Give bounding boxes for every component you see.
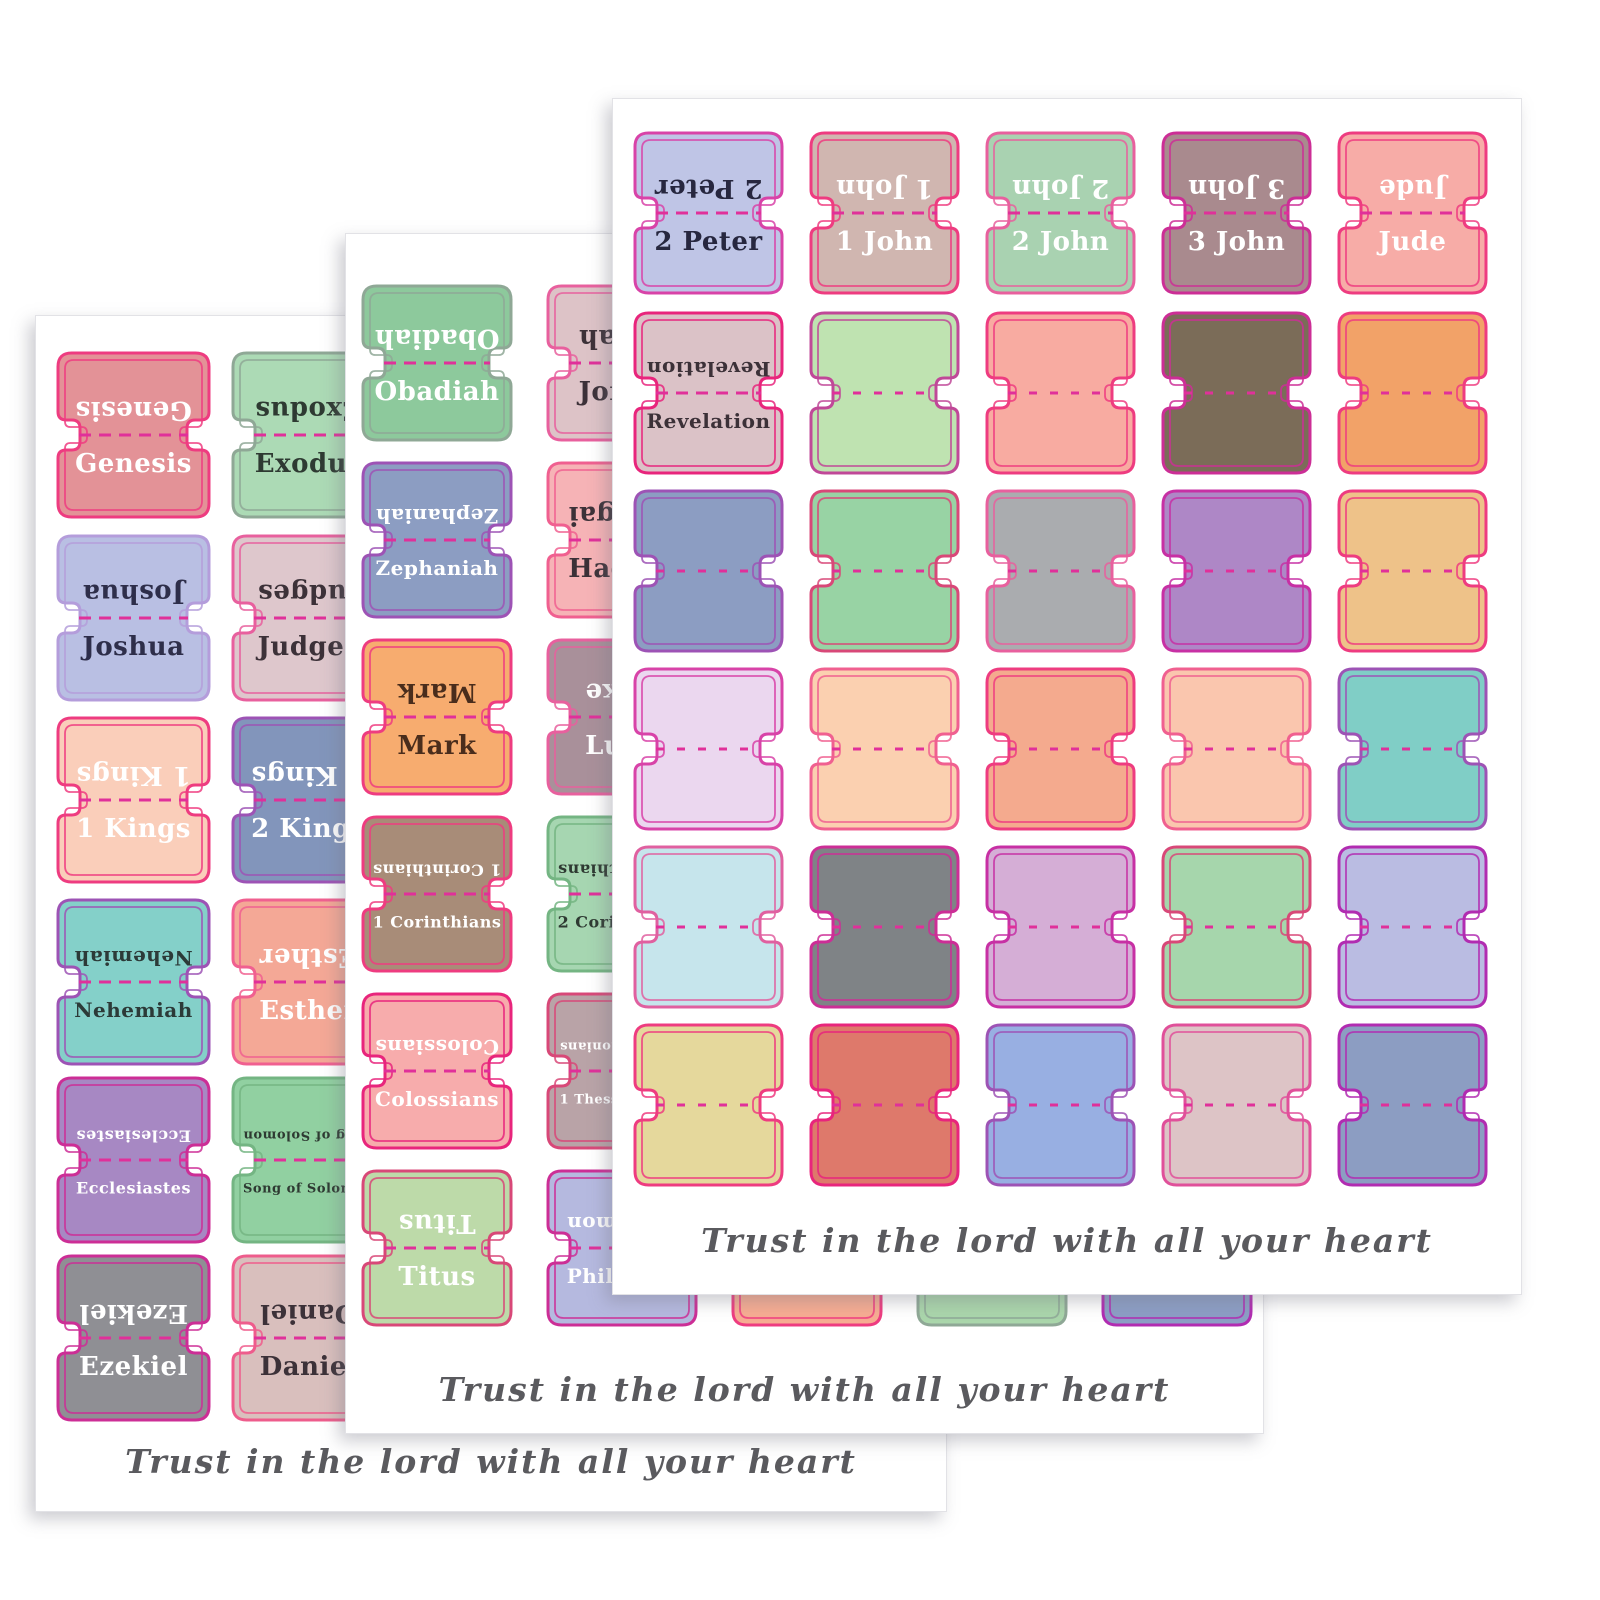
tab-label: Revelation: [647, 409, 771, 433]
tab-blank: [985, 1023, 1136, 1187]
tab-blank: [633, 1023, 784, 1187]
tab-label-mirrored: Colossians: [375, 1035, 499, 1059]
tab-revelation: RevelationRevelation: [633, 311, 784, 475]
tab-blank: [1161, 311, 1312, 475]
tab-blank: [809, 667, 960, 831]
tab-blank: [809, 845, 960, 1009]
tab-label: Nehemiah: [74, 998, 193, 1022]
tab-label-mirrored: Revelation: [647, 357, 771, 381]
tab-label: 1 John: [836, 227, 934, 257]
tab-label: Ecclesiastes: [76, 1179, 191, 1198]
tab-blank: [633, 667, 784, 831]
tab-label: Obadiah: [375, 377, 500, 407]
tab-label: 3 John: [1188, 227, 1286, 257]
tab-label: Titus: [398, 1262, 475, 1292]
tab-1-kings: 1 Kings1 Kings: [56, 716, 211, 884]
tab-blank: [633, 845, 784, 1009]
verse-text: Trust in the lord with all your heart: [346, 1370, 1263, 1409]
tab-joshua: JoshuaJoshua: [56, 534, 211, 702]
tab-blank: [1337, 489, 1488, 653]
tab-blank: [1161, 489, 1312, 653]
tab-label-mirrored: Ezekiel: [79, 1298, 188, 1328]
tab-label: Zephaniah: [376, 556, 499, 580]
tab-label-mirrored: Titus: [398, 1208, 475, 1238]
tab-blank: [1161, 1023, 1312, 1187]
tab-titus: TitusTitus: [361, 1169, 513, 1327]
tab-label-mirrored: 1 John: [836, 173, 934, 203]
tab-label-mirrored: 1 Kings: [76, 760, 191, 790]
tab-label-mirrored: Zephaniah: [376, 504, 499, 528]
tab-label-mirrored: 3 John: [1188, 173, 1286, 203]
tab-label: 1 Corinthians: [373, 913, 502, 932]
product-image: GenesisGenesisExodusExodusJoshuaJoshuaJu…: [0, 0, 1600, 1600]
tab-blank: [1161, 667, 1312, 831]
tab-colossians: ColossiansColossians: [361, 992, 513, 1150]
tab-2-peter: 2 Peter2 Peter: [633, 131, 784, 295]
tab-ezekiel: EzekielEzekiel: [56, 1254, 211, 1422]
tab-label: Daniel: [260, 1352, 358, 1382]
tab-blank: [809, 311, 960, 475]
tab-nehemiah: NehemiahNehemiah: [56, 898, 211, 1066]
tab-label-mirrored: Esther: [259, 942, 358, 972]
tab-label: 1 Kings: [76, 814, 191, 844]
tab-jude: JudeJude: [1337, 131, 1488, 295]
tab-zephaniah: ZephaniahZephaniah: [361, 461, 513, 619]
tab-label-mirrored: Daniel: [260, 1298, 358, 1328]
tab-label-mirrored: Obadiah: [375, 323, 500, 353]
tab-label: 2 John: [1012, 227, 1110, 257]
tab-label: Colossians: [375, 1087, 499, 1111]
tab-label: Mark: [397, 731, 477, 761]
tab-label: Joshua: [81, 632, 185, 662]
tab-blank: [809, 1023, 960, 1187]
tab-mark: MarkMark: [361, 638, 513, 796]
tab-label-mirrored: 1 Corinthians: [373, 860, 502, 879]
tab-ecclesiastes: EcclesiastesEcclesiastes: [56, 1076, 211, 1244]
tab-1-john: 1 John1 John: [809, 131, 960, 295]
verse-text: Trust in the lord with all your heart: [613, 1221, 1521, 1260]
tab-blank: [633, 489, 784, 653]
tab-1-corinthians: 1 Corinthians1 Corinthians: [361, 815, 513, 973]
tab-label-mirrored: 2 Peter: [654, 173, 762, 203]
tab-label: Genesis: [75, 449, 192, 479]
tab-label: 2 Peter: [654, 227, 762, 257]
tab-blank: [985, 845, 1136, 1009]
sheet-front: 2 Peter2 Peter1 John1 John2 John2 John3 …: [612, 98, 1522, 1295]
tab-blank: [1337, 311, 1488, 475]
tab-label-mirrored: Genesis: [75, 395, 192, 425]
tab-label-mirrored: Jude: [1379, 173, 1449, 203]
tab-blank: [1337, 1023, 1488, 1187]
tab-genesis: GenesisGenesis: [56, 351, 211, 519]
tab-label: Judges: [256, 632, 360, 662]
tab-label-mirrored: Joshua: [83, 578, 187, 608]
tab-3-john: 3 John3 John: [1161, 131, 1312, 295]
tab-label: Jude: [1377, 227, 1447, 257]
tab-label-mirrored: Mark: [397, 677, 477, 707]
tab-blank: [985, 311, 1136, 475]
tab-blank: [1161, 845, 1312, 1009]
tab-label: Esther: [259, 996, 358, 1026]
tab-label-mirrored: Ecclesiastes: [76, 1126, 191, 1145]
tab-label-mirrored: 2 John: [1012, 173, 1110, 203]
tab-obadiah: ObadiahObadiah: [361, 284, 513, 442]
tab-blank: [1337, 845, 1488, 1009]
tab-blank: [809, 489, 960, 653]
tab-label: Ezekiel: [79, 1352, 188, 1382]
verse-text: Trust in the lord with all your heart: [36, 1442, 946, 1481]
tab-blank: [985, 489, 1136, 653]
tab-blank: [1337, 667, 1488, 831]
tab-2-john: 2 John2 John: [985, 131, 1136, 295]
tab-label-mirrored: Nehemiah: [74, 946, 193, 970]
tab-blank: [985, 667, 1136, 831]
